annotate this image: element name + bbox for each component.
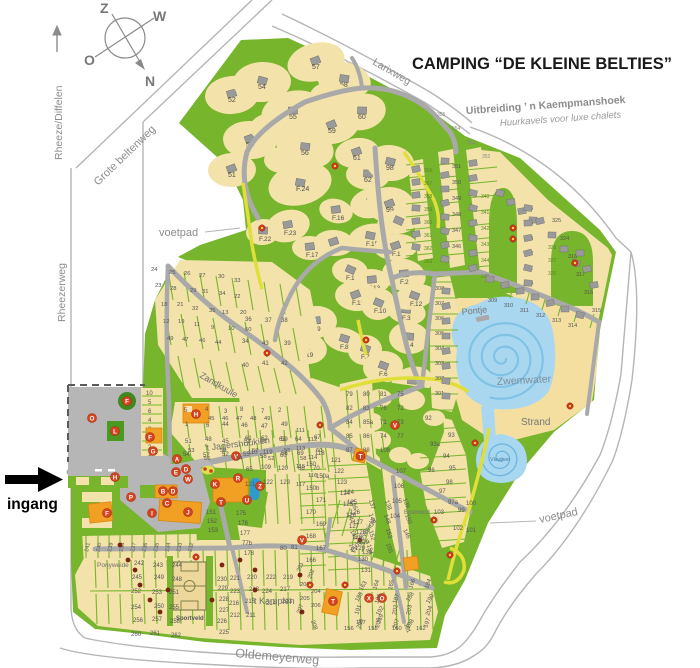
svg-text:222: 222 [266, 575, 277, 581]
svg-text:I: I [151, 510, 153, 517]
svg-text:36: 36 [245, 317, 252, 323]
svg-text:D: D [184, 466, 189, 473]
svg-text:351: 351 [452, 164, 461, 170]
svg-text:95: 95 [449, 466, 456, 472]
svg-text:168: 168 [306, 534, 317, 540]
svg-text:217: 217 [280, 587, 291, 593]
svg-text:221: 221 [230, 576, 241, 582]
svg-text:227: 227 [219, 608, 230, 614]
svg-text:45: 45 [208, 416, 214, 422]
svg-text:80: 80 [280, 546, 287, 552]
svg-text:249: 249 [154, 575, 165, 581]
svg-text:voetpad: voetpad [159, 227, 198, 239]
svg-text:32: 32 [192, 306, 198, 312]
svg-text:F.3: F.3 [402, 315, 411, 322]
svg-text:47: 47 [182, 337, 188, 343]
svg-text:71: 71 [380, 420, 387, 426]
svg-text:151: 151 [206, 510, 217, 516]
svg-text:312: 312 [536, 313, 545, 319]
svg-text:85a: 85a [363, 420, 374, 426]
svg-text:156: 156 [344, 626, 354, 632]
svg-text:358: 358 [424, 194, 433, 200]
svg-text:F.16: F.16 [332, 215, 345, 222]
svg-text:74: 74 [380, 434, 387, 440]
svg-text:251: 251 [169, 590, 180, 596]
svg-text:131: 131 [361, 568, 372, 574]
svg-text:77: 77 [397, 434, 404, 440]
svg-text:12: 12 [163, 319, 169, 325]
svg-text:F: F [105, 510, 109, 517]
svg-text:309: 309 [488, 298, 497, 304]
svg-text:10: 10 [146, 391, 153, 397]
svg-text:30: 30 [218, 274, 224, 280]
svg-text:315: 315 [592, 308, 601, 314]
svg-text:O: O [90, 415, 95, 422]
svg-text:344: 344 [481, 258, 490, 264]
svg-text:326: 326 [548, 271, 557, 277]
svg-text:20: 20 [240, 310, 246, 316]
svg-text:R: R [236, 475, 241, 482]
svg-text:W: W [185, 476, 191, 483]
svg-text:117: 117 [296, 482, 305, 488]
svg-text:327: 327 [548, 258, 557, 264]
svg-text:28: 28 [170, 286, 176, 292]
svg-text:262: 262 [171, 633, 182, 639]
svg-text:316: 316 [584, 290, 593, 296]
svg-text:F.8: F.8 [340, 344, 349, 351]
svg-text:130: 130 [358, 557, 369, 563]
svg-text:152: 152 [207, 519, 218, 525]
svg-text:93: 93 [448, 433, 455, 439]
svg-text:64: 64 [295, 437, 302, 443]
svg-text:C: C [165, 500, 170, 507]
svg-text:113: 113 [296, 446, 305, 452]
svg-text:54: 54 [258, 84, 266, 91]
svg-text:166: 166 [306, 558, 317, 564]
svg-text:Bosnoord: Bosnoord [404, 510, 430, 516]
svg-text:120: 120 [278, 466, 289, 472]
svg-text:97a: 97a [448, 500, 459, 506]
svg-text:219: 219 [283, 575, 294, 581]
svg-text:348: 348 [452, 212, 461, 218]
svg-text:100: 100 [466, 501, 477, 507]
svg-text:98: 98 [386, 165, 394, 172]
svg-text:44: 44 [222, 422, 229, 428]
svg-text:Ponyweide: Ponyweide [97, 562, 129, 569]
svg-text:216: 216 [229, 601, 240, 607]
svg-text:22: 22 [234, 294, 240, 300]
svg-text:107: 107 [396, 469, 407, 475]
svg-text:11: 11 [194, 322, 200, 328]
svg-text:F.24: F.24 [296, 186, 309, 193]
svg-text:26: 26 [184, 271, 190, 277]
svg-text:D: D [171, 488, 176, 495]
svg-text:19: 19 [178, 319, 184, 325]
svg-text:124: 124 [344, 490, 355, 496]
svg-text:44: 44 [215, 340, 222, 346]
svg-text:46: 46 [241, 423, 248, 429]
svg-text:250: 250 [154, 604, 165, 610]
svg-text:244: 244 [172, 563, 183, 569]
svg-text:318: 318 [568, 254, 577, 260]
svg-text:F.12: F.12 [410, 301, 423, 308]
svg-text:94: 94 [443, 454, 450, 460]
svg-text:212: 212 [230, 613, 241, 619]
svg-text:211: 211 [246, 613, 256, 619]
svg-text:ingang: ingang [7, 496, 58, 513]
svg-text:361: 361 [424, 233, 433, 239]
svg-text:346: 346 [452, 244, 461, 250]
svg-text:220: 220 [247, 575, 258, 581]
svg-text:158: 158 [368, 626, 378, 632]
svg-text:46: 46 [222, 416, 228, 422]
svg-text:34: 34 [242, 339, 249, 345]
svg-text:48: 48 [250, 416, 256, 422]
svg-text:86: 86 [363, 434, 370, 440]
svg-text:258: 258 [170, 619, 181, 625]
svg-text:85: 85 [346, 434, 353, 440]
svg-text:352: 352 [482, 154, 491, 160]
svg-text:340: 340 [481, 194, 490, 200]
svg-text:47: 47 [261, 424, 268, 430]
svg-text:37: 37 [265, 318, 272, 324]
svg-text:257: 257 [152, 617, 163, 623]
svg-text:54: 54 [236, 456, 243, 462]
svg-text:104: 104 [390, 514, 401, 520]
svg-text:88: 88 [363, 448, 370, 454]
svg-text:162: 162 [416, 626, 426, 632]
svg-text:24: 24 [151, 267, 158, 273]
svg-text:81: 81 [291, 545, 298, 551]
svg-text:116: 116 [308, 473, 317, 479]
svg-text:60: 60 [316, 448, 322, 454]
svg-text:56: 56 [204, 456, 210, 462]
svg-text:49: 49 [281, 422, 288, 428]
svg-text:76: 76 [380, 406, 387, 412]
svg-text:25: 25 [169, 270, 175, 276]
svg-text:40: 40 [242, 363, 249, 369]
svg-text:93a: 93a [430, 442, 441, 448]
svg-text:324: 324 [560, 236, 569, 242]
svg-text:10: 10 [228, 326, 234, 332]
svg-text:57: 57 [312, 64, 320, 71]
svg-text:80: 80 [363, 392, 370, 398]
svg-text:96: 96 [428, 468, 435, 474]
svg-text:27: 27 [199, 273, 205, 279]
svg-text:Sportveld: Sportveld [176, 616, 204, 622]
svg-text:35: 35 [209, 308, 215, 314]
svg-text:J: J [186, 509, 190, 516]
svg-text:349: 349 [452, 196, 461, 202]
svg-text:63: 63 [279, 437, 286, 443]
svg-text:325: 325 [552, 218, 561, 224]
svg-text:41: 41 [262, 361, 269, 367]
svg-text:A: A [175, 456, 180, 463]
svg-text:N: N [145, 73, 155, 89]
svg-text:77b: 77b [242, 541, 253, 547]
svg-text:353: 353 [467, 140, 476, 146]
svg-text:65: 65 [246, 467, 253, 473]
svg-text:52: 52 [228, 97, 236, 104]
svg-text:CAMPING “DE KLEINE BELTIES”: CAMPING “DE KLEINE BELTIES” [412, 55, 672, 73]
svg-text:103: 103 [434, 510, 445, 516]
svg-text:115: 115 [296, 464, 305, 470]
svg-text:B: B [161, 488, 166, 495]
svg-text:245: 245 [132, 575, 143, 581]
svg-text:23: 23 [155, 283, 161, 289]
svg-text:59: 59 [328, 128, 336, 135]
svg-text:T: T [219, 499, 223, 506]
svg-text:9: 9 [211, 325, 214, 331]
svg-text:354: 354 [452, 126, 461, 132]
svg-text:F: F [148, 434, 152, 441]
svg-text:42: 42 [281, 361, 288, 367]
svg-text:56: 56 [301, 150, 309, 157]
svg-text:Strand: Strand [521, 417, 550, 428]
svg-text:223: 223 [230, 589, 241, 595]
svg-text:Z: Z [100, 0, 109, 16]
svg-text:50: 50 [245, 327, 251, 333]
svg-text:H: H [113, 474, 118, 481]
svg-text:355: 355 [437, 112, 446, 118]
svg-text:84: 84 [346, 420, 353, 426]
svg-text:111: 111 [296, 428, 305, 434]
svg-text:260: 260 [131, 632, 142, 638]
svg-text:169: 169 [316, 522, 327, 528]
svg-text:122: 122 [263, 480, 274, 486]
svg-text:81: 81 [380, 392, 387, 398]
svg-text:362: 362 [424, 246, 433, 252]
svg-text:13: 13 [222, 310, 228, 316]
svg-text:F.23: F.23 [284, 230, 297, 237]
svg-text:350: 350 [452, 180, 461, 186]
svg-text:175: 175 [236, 511, 247, 517]
svg-text:57: 57 [252, 448, 258, 454]
svg-text:108: 108 [380, 448, 391, 454]
svg-text:105: 105 [392, 499, 403, 505]
svg-text:U: U [245, 497, 250, 504]
svg-text:72: 72 [397, 406, 404, 412]
svg-text:177: 177 [240, 531, 251, 537]
svg-text:E: E [174, 469, 178, 476]
svg-text:F.6: F.6 [379, 371, 388, 378]
svg-text:51: 51 [185, 439, 192, 445]
svg-text:49: 49 [167, 336, 173, 342]
svg-text:F.1: F.1 [392, 251, 401, 258]
svg-text:F.10: F.10 [374, 308, 387, 315]
svg-text:F: F [125, 398, 129, 405]
svg-text:356: 356 [424, 168, 433, 174]
svg-text:109: 109 [261, 465, 272, 471]
svg-text:230: 230 [217, 577, 228, 583]
svg-text:33: 33 [234, 278, 240, 284]
svg-text:55: 55 [284, 448, 290, 454]
svg-text:253: 253 [152, 590, 163, 596]
svg-text:K: K [213, 481, 218, 488]
svg-text:122: 122 [334, 469, 345, 475]
svg-text:343: 343 [481, 242, 490, 248]
svg-text:99: 99 [458, 508, 465, 514]
svg-text:75: 75 [397, 392, 404, 398]
svg-text:62: 62 [364, 177, 372, 184]
svg-text:31: 31 [202, 289, 208, 295]
svg-text:178: 178 [244, 551, 255, 557]
svg-text:205: 205 [300, 596, 310, 602]
svg-text:’t Kampien: ’t Kampien [252, 596, 295, 606]
svg-text:150a: 150a [316, 474, 330, 480]
svg-text:46: 46 [199, 338, 205, 344]
svg-text:342: 342 [481, 226, 490, 232]
svg-text:363: 363 [424, 259, 433, 265]
svg-text:H: H [194, 411, 199, 418]
svg-text:255: 255 [169, 605, 180, 611]
svg-text:53: 53 [188, 448, 194, 454]
svg-text:101: 101 [466, 528, 477, 534]
svg-text:52: 52 [268, 456, 274, 462]
svg-text:310: 310 [504, 303, 513, 309]
svg-text:254: 254 [131, 605, 142, 611]
svg-text:O: O [84, 52, 95, 68]
svg-text:206: 206 [311, 603, 321, 609]
svg-text:49: 49 [264, 416, 270, 422]
svg-text:347: 347 [452, 228, 461, 234]
svg-text:313: 313 [552, 318, 561, 324]
svg-text:229: 229 [218, 586, 229, 592]
svg-text:W: W [153, 8, 167, 24]
svg-text:98: 98 [446, 480, 453, 486]
svg-text:123: 123 [337, 480, 348, 486]
svg-text:38: 38 [281, 318, 288, 324]
svg-text:97: 97 [439, 489, 446, 495]
svg-text:F.22: F.22 [259, 236, 272, 243]
svg-text:226: 226 [217, 619, 228, 625]
svg-text:256: 256 [133, 618, 144, 624]
svg-text:82: 82 [346, 406, 353, 412]
svg-text:87: 87 [346, 448, 353, 454]
svg-text:150b: 150b [306, 486, 320, 492]
svg-text:204: 204 [311, 589, 321, 595]
svg-text:18: 18 [161, 302, 167, 308]
svg-text:F.17: F.17 [306, 252, 319, 259]
svg-text:79: 79 [346, 392, 353, 398]
svg-text:106: 106 [394, 484, 405, 490]
svg-text:Z: Z [258, 483, 262, 490]
svg-text:114: 114 [308, 455, 318, 461]
svg-text:Rheeze/Diffelen: Rheeze/Diffelen [53, 85, 65, 160]
svg-text:176: 176 [238, 521, 249, 527]
svg-text:243: 243 [153, 563, 164, 569]
svg-text:T: T [331, 598, 335, 605]
svg-text:123: 123 [280, 480, 291, 486]
svg-text:60: 60 [358, 114, 366, 121]
svg-text:F.2: F.2 [400, 279, 409, 286]
svg-text:73: 73 [397, 420, 404, 426]
svg-text:P: P [129, 494, 133, 501]
svg-text:Rheezerweg: Rheezerweg [56, 263, 68, 322]
svg-text:34: 34 [219, 291, 226, 297]
svg-text:T: T [359, 453, 363, 460]
svg-text:170: 170 [306, 510, 317, 516]
svg-text:150: 150 [306, 462, 317, 468]
svg-text:21: 21 [177, 302, 183, 308]
svg-text:153: 153 [208, 528, 219, 534]
svg-text:341: 341 [481, 210, 490, 216]
svg-text:261: 261 [150, 631, 161, 637]
svg-text:102: 102 [453, 526, 464, 532]
svg-text:359: 359 [424, 207, 433, 213]
svg-text:167: 167 [316, 546, 327, 552]
svg-text:43: 43 [262, 341, 269, 347]
svg-text:Visvijver: Visvijver [490, 457, 511, 463]
svg-text:L: L [113, 428, 117, 435]
svg-text:83: 83 [363, 406, 370, 412]
svg-text:112: 112 [308, 437, 317, 443]
svg-text:225: 225 [219, 630, 230, 636]
svg-text:47: 47 [236, 416, 242, 422]
svg-text:357: 357 [424, 181, 433, 187]
svg-text:248: 248 [172, 577, 183, 583]
svg-text:160: 160 [392, 626, 402, 632]
svg-text:58: 58 [300, 456, 306, 462]
svg-text:G: G [151, 448, 156, 455]
svg-text:157: 157 [356, 620, 366, 626]
svg-text:171: 171 [316, 498, 327, 504]
svg-text:328: 328 [548, 245, 557, 251]
svg-text:252: 252 [131, 589, 142, 595]
svg-text:311: 311 [520, 308, 529, 314]
svg-text:51: 51 [228, 172, 236, 179]
svg-text:92: 92 [425, 416, 432, 422]
svg-text:121: 121 [245, 482, 256, 488]
svg-text:29: 29 [190, 288, 196, 294]
svg-text:224: 224 [262, 589, 273, 595]
svg-text:314: 314 [568, 323, 577, 329]
svg-text:242: 242 [134, 561, 145, 567]
svg-text:39: 39 [284, 341, 291, 347]
svg-text:360: 360 [424, 220, 433, 226]
svg-text:121: 121 [331, 458, 342, 464]
